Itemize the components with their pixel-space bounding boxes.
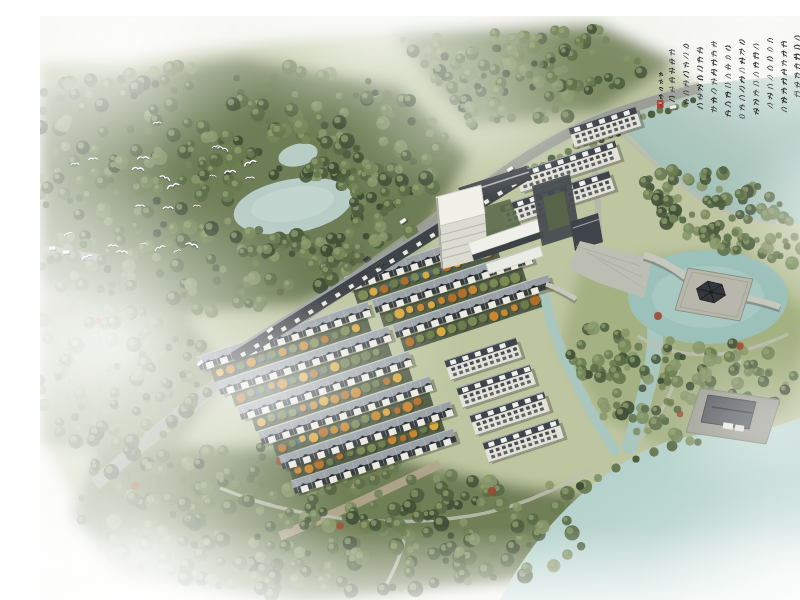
calligraphy-column — [739, 40, 745, 119]
calligraphy-column — [711, 42, 717, 113]
calligraphy-column — [753, 44, 759, 115]
calligraphy-column — [725, 46, 731, 117]
calligraphy-column — [781, 41, 787, 112]
calligraphy-inscription — [40, 16, 800, 600]
calligraphy-column — [697, 48, 703, 110]
red-seal — [657, 100, 664, 109]
calligraphy-column — [767, 38, 773, 108]
calligraphy-column — [683, 44, 689, 105]
calligraphy-column — [669, 49, 675, 101]
aerial-rendering — [40, 16, 800, 600]
calligraphy-column — [794, 36, 800, 97]
